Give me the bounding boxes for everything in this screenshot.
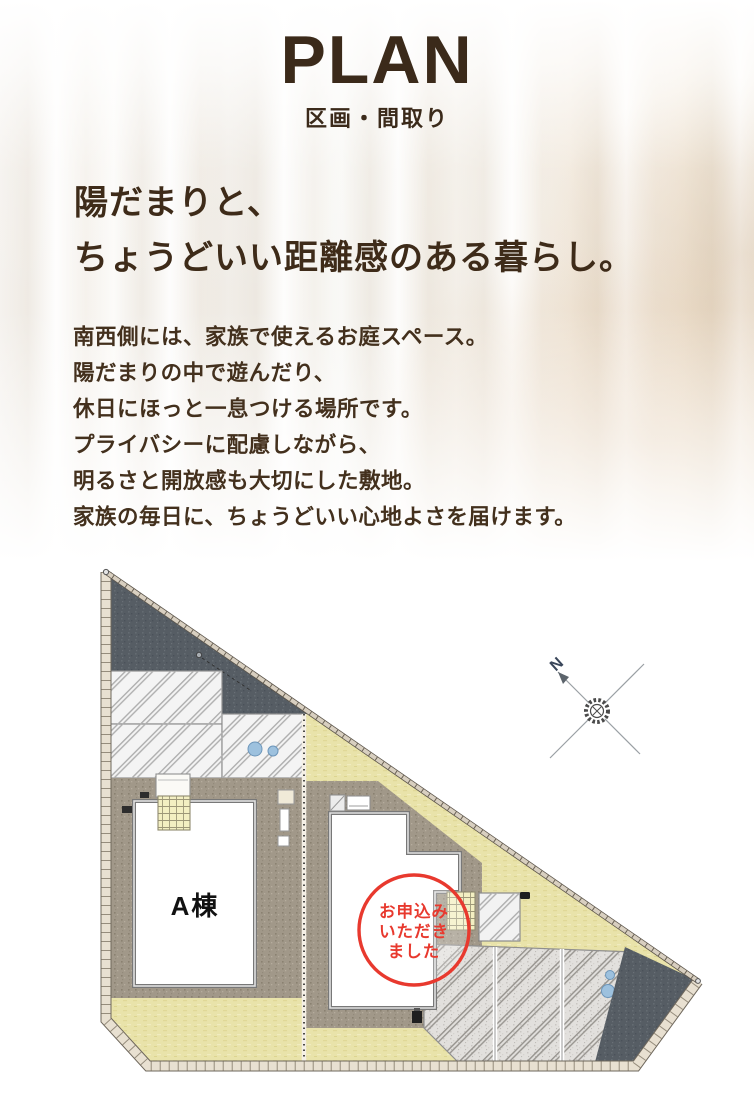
storage-box — [278, 790, 294, 804]
sold-stamp-line-3: ました — [388, 942, 441, 961]
house-a-porch — [156, 774, 190, 797]
utility-box — [520, 892, 530, 899]
compass-north-label: N — [547, 654, 567, 674]
description-line-1: 南西側には、家族で使えるお庭スペース。 — [73, 319, 754, 355]
house-b-side-parking — [479, 893, 520, 941]
lead-heading: 陽だまりと、 ちょうどいい距離感のある暮らし。 — [74, 176, 754, 286]
site-plan-drawing: N A棟 お申込み いただき ました — [92, 568, 712, 1108]
description-line-3: 休日にほっと一息つける場所です。 — [73, 391, 754, 427]
section-title-block: PLAN 区画・間取り — [0, 0, 754, 133]
water-feature-icon — [248, 742, 262, 756]
description-line-6: 家族の毎日に、ちょうどいい心地よさを届けます。 — [73, 499, 754, 535]
description-line-2: 陽だまりの中で遊んだり、 — [73, 355, 754, 391]
description-line-5: 明るさと開放感も大切にした敷地。 — [73, 463, 754, 499]
plan-page: PLAN 区画・間取り 陽だまりと、 ちょうどいい距離感のある暮らし。 南西側に… — [0, 0, 754, 1108]
description-text: 南西側には、家族で使えるお庭スペース。 陽だまりの中で遊んだり、 休日にほっと一… — [73, 319, 754, 535]
sold-stamp-line-2: いただき — [379, 922, 449, 941]
house-a-footprint — [122, 774, 255, 986]
house-a-entrance-tile — [158, 796, 190, 830]
page-subtitle: 区画・間取り — [0, 101, 754, 133]
lead-heading-line-1: 陽だまりと、 — [74, 176, 754, 231]
lead-heading-line-2: ちょうどいい距離感のある暮らし。 — [74, 231, 754, 286]
sold-stamp: お申込み いただき ました — [359, 875, 469, 985]
lot-interior — [92, 568, 712, 1108]
site-plan-section: N A棟 お申込み いただき ました — [92, 568, 712, 1108]
building-a-label: A棟 — [171, 891, 220, 921]
curtain-photo-background: PLAN 区画・間取り 陽だまりと、 ちょうどいい距離感のある暮らし。 南西側に… — [0, 0, 754, 562]
compass-icon: N — [547, 654, 644, 758]
utility-box-2 — [412, 1011, 422, 1023]
page-title: PLAN — [0, 26, 754, 94]
description-line-4: プライバシーに配慮しながら、 — [73, 427, 754, 463]
sold-stamp-line-1: お申込み — [379, 901, 449, 921]
